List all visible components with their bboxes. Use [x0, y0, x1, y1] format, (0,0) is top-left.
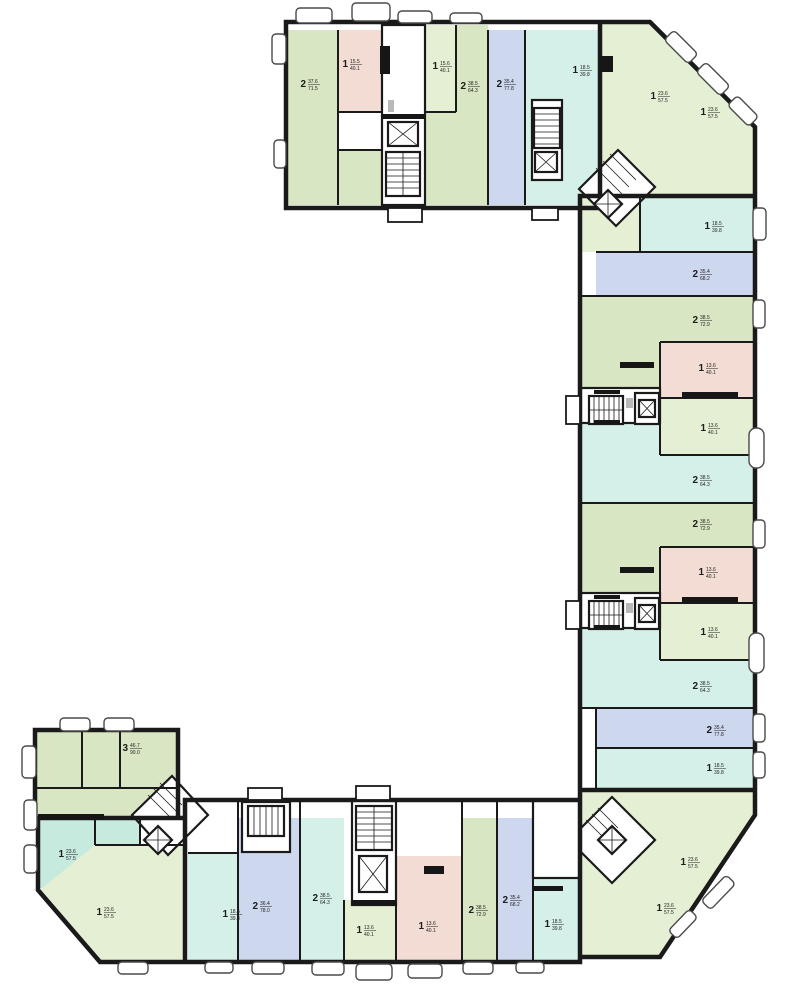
balcony — [272, 34, 286, 64]
balcony — [104, 718, 134, 731]
entrance-porches — [248, 208, 580, 800]
svg-text:23.6: 23.6 — [688, 857, 698, 863]
wc-fixture — [626, 603, 633, 613]
unit-u24-area — [497, 818, 533, 962]
svg-text:77.8: 77.8 — [504, 86, 514, 92]
balcony — [753, 752, 765, 778]
svg-text:46.7: 46.7 — [130, 743, 140, 749]
svg-text:2: 2 — [252, 901, 258, 912]
svg-text:1: 1 — [342, 59, 348, 70]
svg-text:2: 2 — [692, 519, 698, 530]
landing-strip — [594, 390, 620, 394]
svg-text:71.5: 71.5 — [308, 86, 318, 92]
svg-text:40.1: 40.1 — [440, 68, 450, 74]
svg-text:1: 1 — [544, 919, 550, 930]
svg-text:2: 2 — [706, 725, 712, 736]
balcony — [753, 208, 766, 240]
unit-u30-area — [188, 853, 238, 962]
svg-text:57.5: 57.5 — [66, 856, 76, 862]
svg-text:2: 2 — [300, 79, 306, 90]
svg-text:3: 3 — [122, 743, 128, 754]
balcony — [463, 962, 493, 974]
kitchen-block — [424, 866, 444, 874]
landing-strip — [594, 420, 620, 424]
svg-text:1: 1 — [700, 627, 706, 638]
unit-u2-area — [338, 30, 382, 112]
balcony — [60, 718, 90, 731]
svg-text:38.5: 38.5 — [700, 681, 710, 687]
porch-section7 — [248, 788, 282, 800]
svg-text:1: 1 — [58, 849, 64, 860]
svg-text:35.4: 35.4 — [510, 895, 520, 901]
section-strip — [682, 597, 738, 603]
svg-text:40.1: 40.1 — [708, 634, 718, 640]
svg-text:18.5: 18.5 — [230, 909, 240, 915]
svg-text:2: 2 — [460, 81, 466, 92]
wc-fixture — [626, 398, 633, 408]
svg-text:23.6: 23.6 — [708, 107, 718, 113]
svg-text:40.1: 40.1 — [706, 370, 716, 376]
balcony — [749, 428, 764, 468]
balcony — [22, 746, 36, 778]
balcony — [398, 11, 432, 23]
svg-text:13.6: 13.6 — [364, 925, 374, 931]
balcony — [753, 300, 765, 328]
porch-section3 — [566, 396, 580, 424]
shaft-block — [380, 46, 390, 74]
svg-text:1: 1 — [432, 61, 438, 72]
svg-text:38.5: 38.5 — [700, 315, 710, 321]
svg-text:40.1: 40.1 — [350, 66, 360, 72]
balcony — [296, 8, 332, 23]
svg-text:57.5: 57.5 — [664, 910, 674, 916]
section-strip — [352, 900, 396, 905]
svg-text:23.6: 23.6 — [66, 849, 76, 855]
svg-text:72.9: 72.9 — [476, 912, 486, 918]
balcony — [753, 714, 765, 742]
svg-text:57.5: 57.5 — [658, 98, 668, 104]
svg-text:64.3: 64.3 — [468, 88, 478, 94]
svg-text:23.6: 23.6 — [104, 907, 114, 913]
svg-text:38.5: 38.5 — [468, 81, 478, 87]
svg-text:35.4: 35.4 — [700, 269, 710, 275]
svg-text:23.6: 23.6 — [658, 91, 668, 97]
svg-text:78.0: 78.0 — [260, 908, 270, 914]
svg-text:37.6: 37.6 — [308, 79, 318, 85]
balcony — [408, 964, 442, 978]
svg-text:40.1: 40.1 — [706, 574, 716, 580]
unit-u28-area — [300, 818, 344, 962]
svg-text:57.5: 57.5 — [688, 864, 698, 870]
svg-text:39.8: 39.8 — [714, 770, 724, 776]
svg-text:68.2: 68.2 — [700, 276, 710, 282]
unit-u27-area — [344, 900, 396, 962]
svg-text:39.8: 39.8 — [230, 916, 240, 922]
porch-section6 — [356, 786, 390, 800]
balcony — [753, 520, 765, 548]
balcony — [118, 962, 148, 974]
svg-text:13.6: 13.6 — [706, 567, 716, 573]
svg-text:38.5: 38.5 — [700, 475, 710, 481]
wc-fixture — [388, 100, 394, 112]
svg-text:2: 2 — [496, 79, 502, 90]
balcony — [749, 633, 764, 673]
svg-text:1: 1 — [356, 925, 362, 936]
svg-text:35.4: 35.4 — [504, 79, 514, 85]
svg-text:2: 2 — [692, 681, 698, 692]
unit-u5-area — [488, 30, 525, 205]
svg-text:1: 1 — [704, 221, 710, 232]
unit-u9-area — [640, 196, 755, 252]
section-strip — [682, 392, 738, 398]
floor-plan-page: 237.671.5115.540.1115.640.1238.564.3235.… — [0, 0, 806, 1000]
balcony — [24, 845, 37, 873]
unit-u25-area — [462, 818, 497, 962]
svg-text:40.1: 40.1 — [364, 932, 374, 938]
svg-text:39.8: 39.8 — [580, 72, 590, 78]
stair-core-section5 — [533, 800, 580, 878]
svg-text:38.5: 38.5 — [700, 519, 710, 525]
unit-u20-area — [596, 748, 755, 790]
svg-text:2: 2 — [692, 475, 698, 486]
svg-text:68.2: 68.2 — [510, 902, 520, 908]
balcony — [252, 962, 284, 974]
svg-text:2: 2 — [692, 269, 698, 280]
svg-text:39.8: 39.8 — [712, 228, 722, 234]
balcony — [356, 964, 392, 980]
floor-plan-drawing: 237.671.5115.540.1115.640.1238.564.3235.… — [0, 0, 806, 1000]
svg-text:13.6: 13.6 — [708, 423, 718, 429]
balcony — [312, 962, 344, 975]
svg-text:15.5: 15.5 — [350, 59, 360, 65]
balcony — [24, 800, 37, 830]
svg-text:13.6: 13.6 — [426, 921, 436, 927]
porch-section1 — [388, 208, 422, 222]
svg-text:72.9: 72.9 — [700, 526, 710, 532]
unit-u1-area — [288, 30, 338, 205]
section-strip — [533, 886, 563, 891]
svg-text:57.5: 57.5 — [708, 114, 718, 120]
svg-text:15.6: 15.6 — [440, 61, 450, 67]
svg-text:57.5: 57.5 — [104, 914, 114, 920]
svg-text:77.8: 77.8 — [714, 732, 724, 738]
svg-text:2: 2 — [312, 893, 318, 904]
shaft-block — [600, 56, 613, 72]
svg-text:90.0: 90.0 — [130, 750, 140, 756]
balcony — [205, 962, 233, 973]
svg-text:1: 1 — [700, 423, 706, 434]
unit-u10-area — [596, 252, 755, 296]
section-strip — [382, 114, 425, 119]
porch-section4 — [566, 601, 580, 629]
svg-text:40.1: 40.1 — [426, 928, 436, 934]
svg-text:18.5: 18.5 — [714, 763, 724, 769]
balcony — [352, 3, 390, 21]
svg-text:1: 1 — [96, 907, 102, 918]
svg-text:23.6: 23.6 — [664, 903, 674, 909]
balcony — [516, 962, 544, 973]
svg-text:13.6: 13.6 — [706, 363, 716, 369]
svg-text:64.3: 64.3 — [700, 482, 710, 488]
landing-strip — [594, 595, 620, 599]
landing-strip — [594, 625, 620, 629]
unit-u1-room — [338, 150, 382, 205]
svg-text:1: 1 — [656, 903, 662, 914]
svg-text:2: 2 — [468, 905, 474, 916]
svg-text:39.8: 39.8 — [552, 926, 562, 932]
svg-text:18.5: 18.5 — [552, 919, 562, 925]
svg-text:1: 1 — [650, 91, 656, 102]
svg-text:40.1: 40.1 — [708, 430, 718, 436]
balcony — [450, 13, 482, 23]
balcony — [274, 140, 286, 168]
section-strip — [620, 567, 654, 573]
svg-text:38.5: 38.5 — [476, 905, 486, 911]
svg-text:2: 2 — [502, 895, 508, 906]
unit-u19-area — [596, 708, 755, 748]
svg-text:1: 1 — [700, 107, 706, 118]
svg-text:18.5: 18.5 — [580, 65, 590, 71]
svg-text:35.4: 35.4 — [714, 725, 724, 731]
svg-text:18.5: 18.5 — [712, 221, 722, 227]
svg-text:1: 1 — [698, 363, 704, 374]
svg-text:13.6: 13.6 — [708, 627, 718, 633]
svg-text:1: 1 — [706, 763, 712, 774]
svg-text:2: 2 — [692, 315, 698, 326]
svg-text:72.9: 72.9 — [700, 322, 710, 328]
porch-section2 — [532, 208, 558, 220]
svg-text:1: 1 — [698, 567, 704, 578]
svg-text:1: 1 — [222, 909, 228, 920]
svg-text:1: 1 — [680, 857, 686, 868]
section-strip — [620, 362, 654, 368]
svg-text:38.5: 38.5 — [320, 893, 330, 899]
svg-text:64.3: 64.3 — [320, 900, 330, 906]
svg-text:1: 1 — [572, 65, 578, 76]
svg-text:1: 1 — [418, 921, 424, 932]
section-strip — [38, 814, 104, 820]
svg-text:36.4: 36.4 — [260, 901, 270, 907]
svg-text:64.3: 64.3 — [700, 688, 710, 694]
